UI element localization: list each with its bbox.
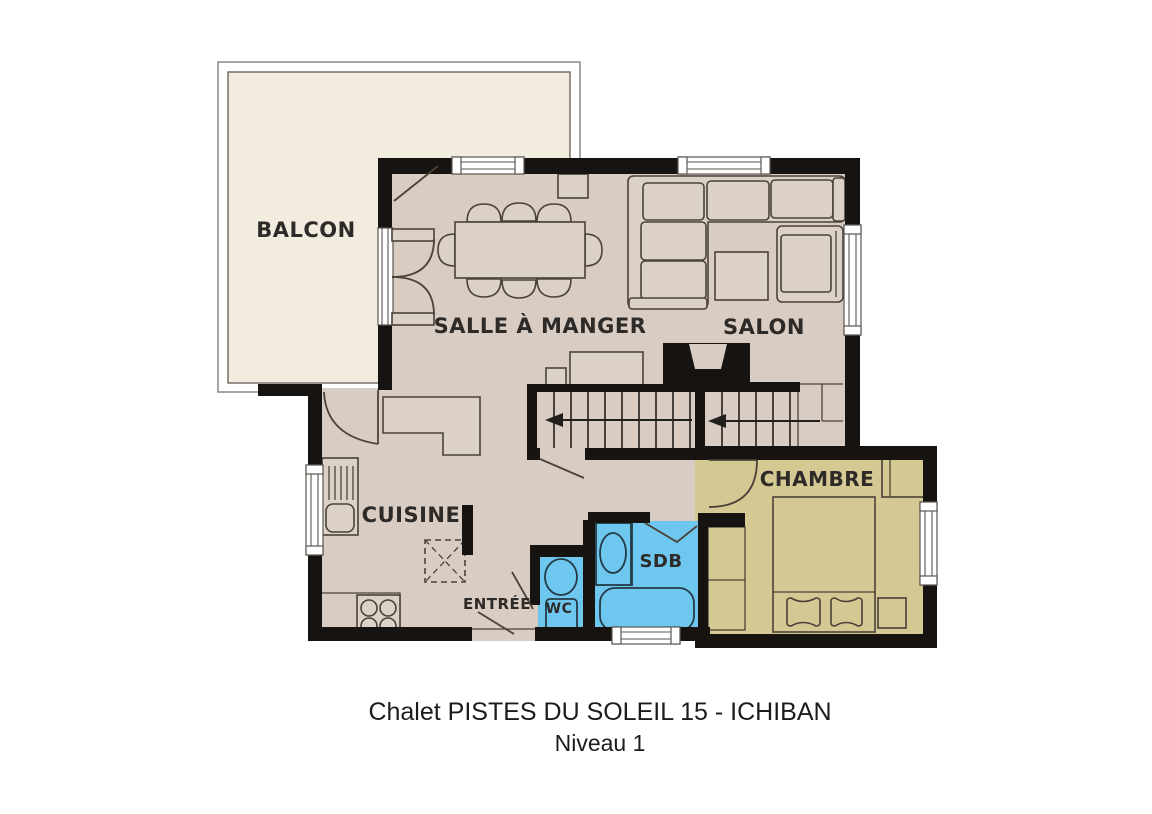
plan-subtitle: Niveau 1 — [555, 730, 646, 756]
window-living-top — [678, 157, 770, 174]
french-door-balcony — [378, 228, 393, 325]
floorplan-drawing: BALCON SALLE À MANGER SALON CUISINE ENTR… — [0, 0, 1152, 814]
label-bedroom: CHAMBRE — [760, 467, 875, 491]
window-bedroom-right — [920, 502, 937, 585]
label-living: SALON — [723, 315, 805, 339]
window-living-right — [844, 225, 861, 335]
coffee-table — [715, 252, 768, 300]
label-dining: SALLE À MANGER — [434, 313, 647, 338]
label-kitchen: CUISINE — [362, 503, 461, 527]
window-dining-top — [452, 157, 524, 174]
dining-table — [455, 222, 585, 278]
label-wc: WC — [546, 601, 573, 617]
label-balcony: BALCON — [256, 218, 355, 242]
plan-title: Chalet PISTES DU SOLEIL 15 - ICHIBAN — [368, 698, 831, 726]
entry-threshold — [472, 627, 535, 641]
window-bathroom-bottom — [612, 627, 680, 644]
window-kitchen-left — [306, 465, 323, 555]
label-entry: ENTRÉE — [463, 594, 531, 613]
wall-cupboard — [558, 174, 588, 198]
sideboard-large — [570, 352, 643, 388]
kitchen-sink — [322, 458, 358, 535]
label-bathroom: SDB — [639, 551, 682, 572]
title-block: Chalet PISTES DU SOLEIL 15 - ICHIBAN Niv… — [368, 698, 831, 756]
armchair — [777, 226, 843, 302]
floorplan-page: BALCON SALLE À MANGER SALON CUISINE ENTR… — [0, 0, 1152, 814]
